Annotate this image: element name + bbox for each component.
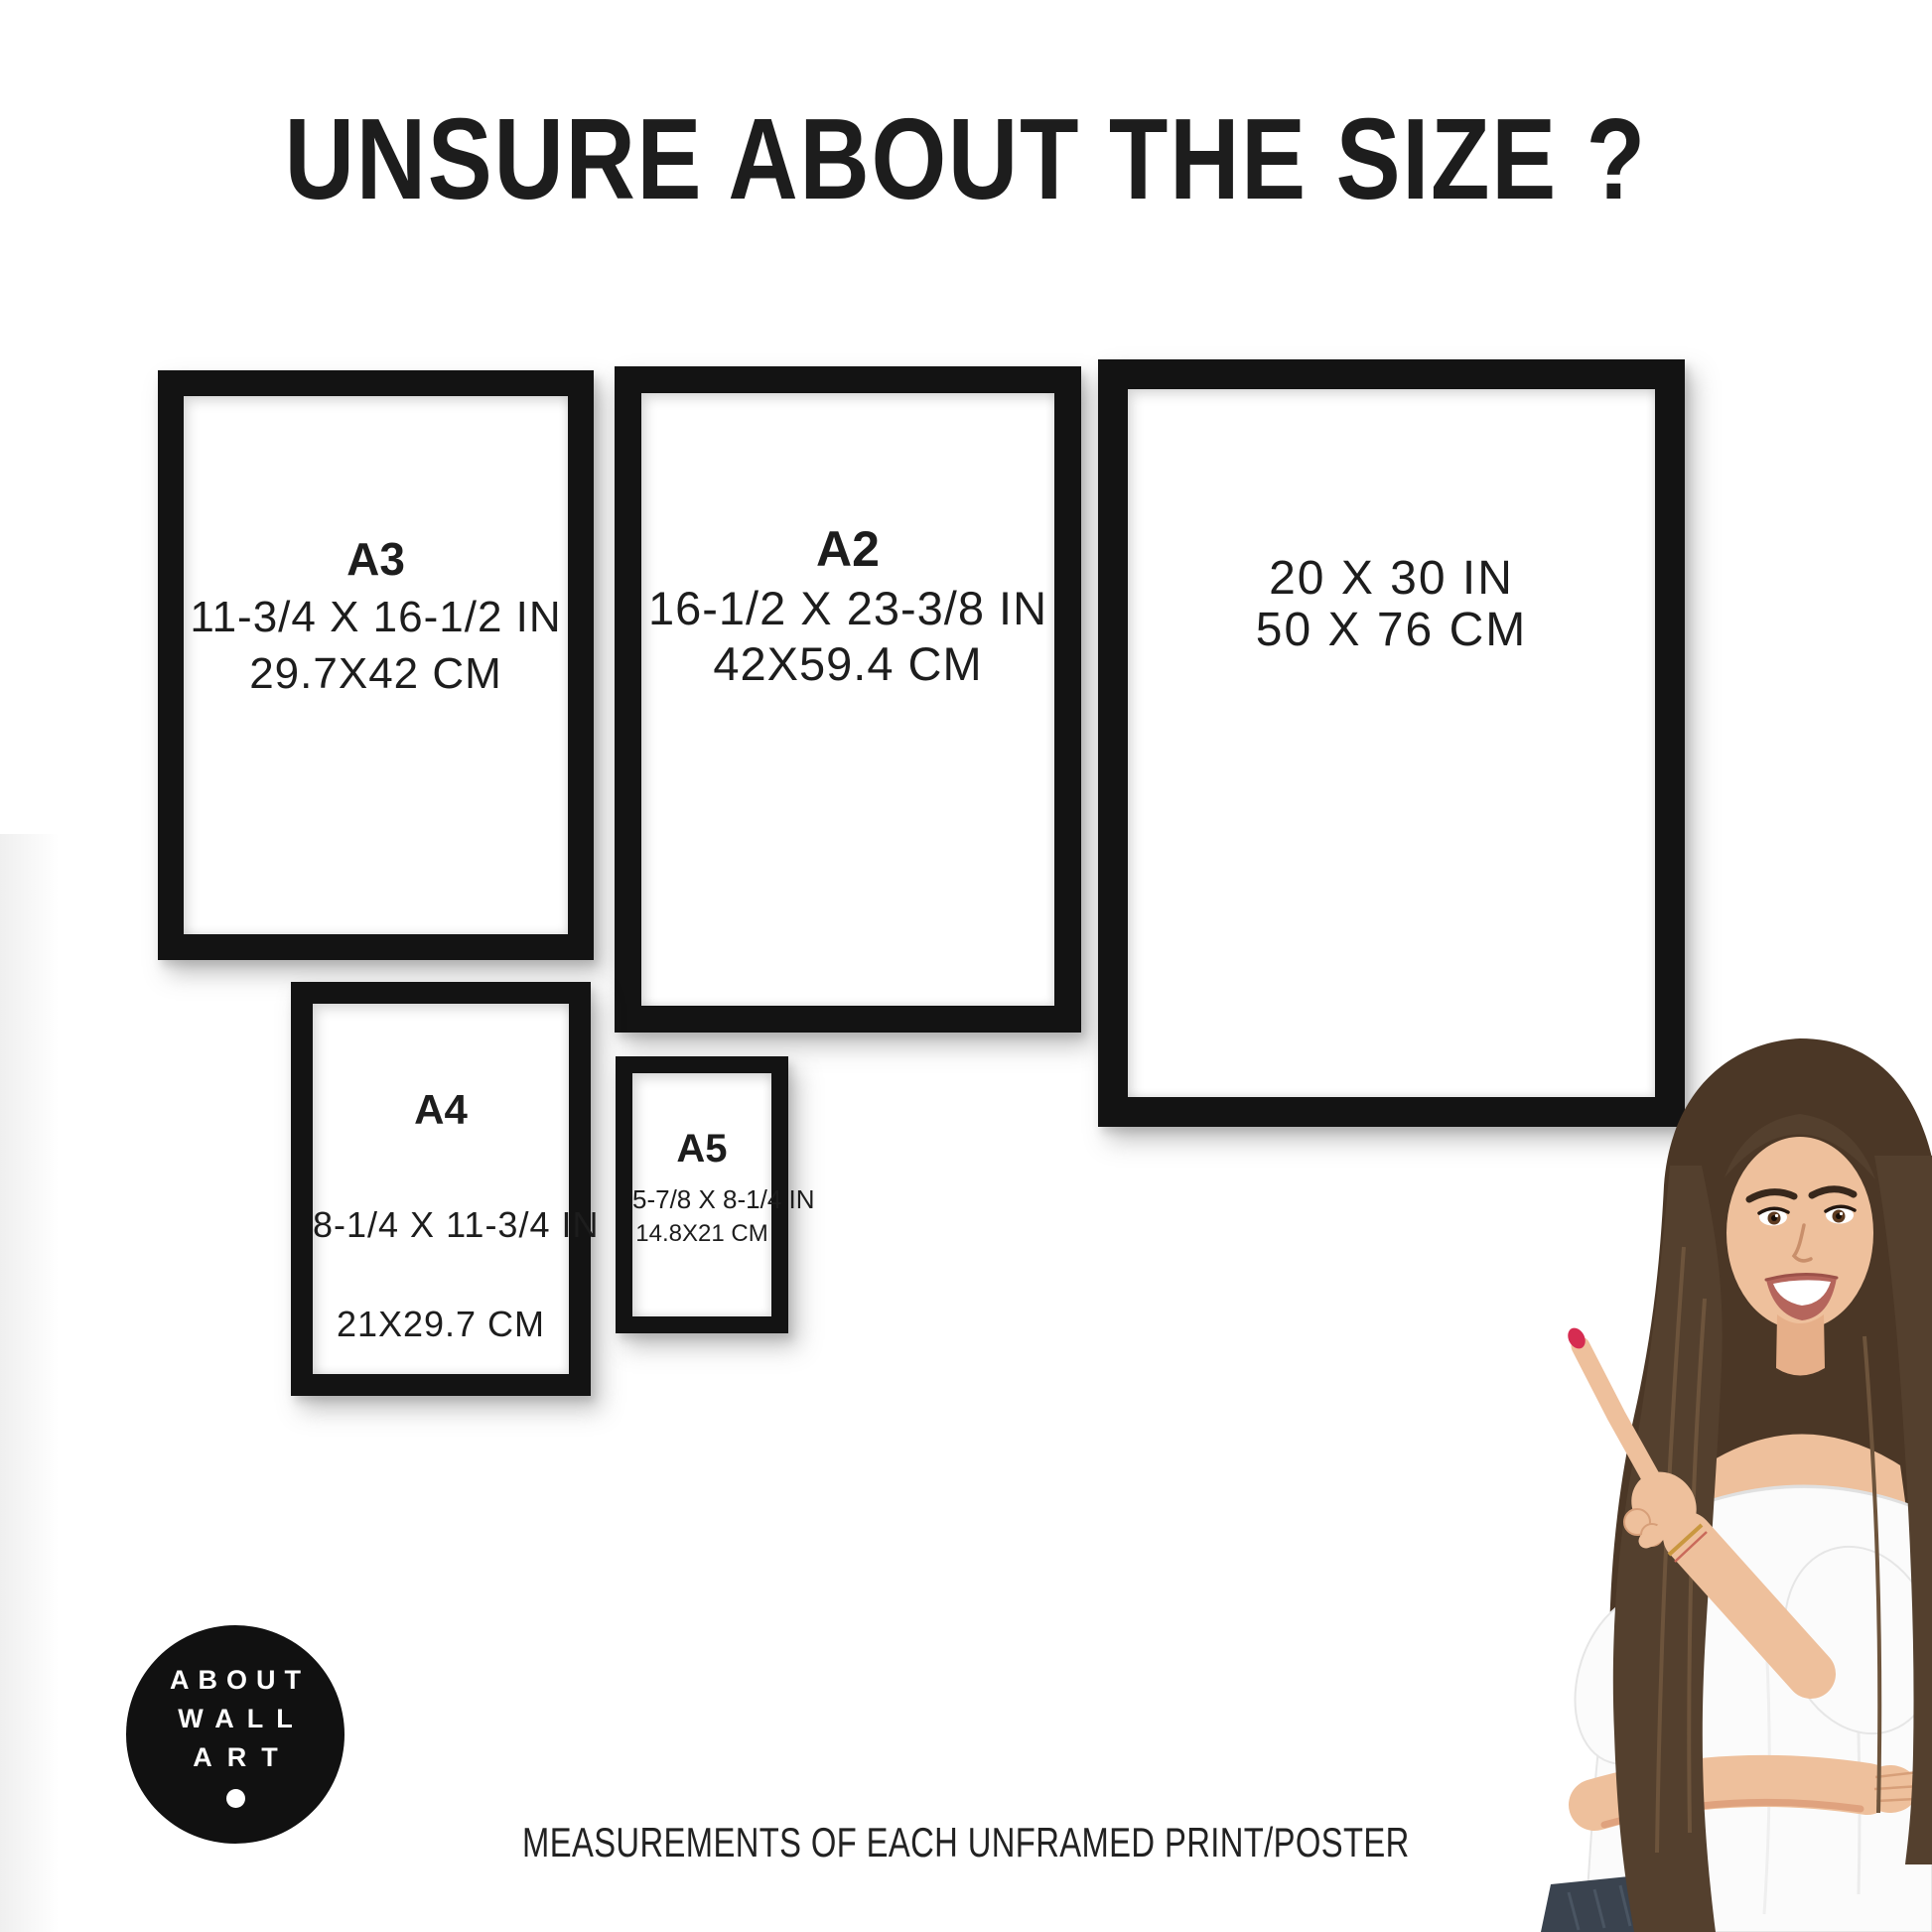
footer-caption-text: MEASUREMENTS OF EACH UNFRAMED PRINT/POST…	[522, 1820, 1410, 1865]
frame-a4-paper: A4 8-1/4 X 11-3/4 IN 21X29.7 CM	[313, 1004, 569, 1374]
frame-a2-cm: 42X59.4 CM	[641, 636, 1054, 692]
frame-a2-paper: A2 16-1/2 X 23-3/8 IN 42X59.4 CM	[641, 393, 1054, 1006]
frame-a5-inches: 5-7/8 X 8-1/4 IN	[632, 1183, 771, 1215]
frame-a3-cm: 29.7X42 CM	[184, 645, 568, 702]
frame-20x30: 20 X 30 IN 50 X 76 CM	[1098, 359, 1685, 1127]
page-title: UNSURE ABOUT THE SIZE ?	[0, 99, 1932, 220]
frame-a4-cm: 21X29.7 CM	[313, 1302, 569, 1347]
frame-a3-inches: 11-3/4 X 16-1/2 IN	[184, 589, 568, 645]
frame-a2-inches: 16-1/2 X 23-3/8 IN	[641, 581, 1054, 636]
page-title-text: UNSURE ABOUT THE SIZE ?	[285, 99, 1647, 220]
frame-a3: A3 11-3/4 X 16-1/2 IN 29.7X42 CM	[158, 370, 594, 960]
frame-a4-inches: 8-1/4 X 11-3/4 IN	[313, 1202, 569, 1248]
brand-logo-line1: ABOUT	[161, 1661, 310, 1700]
neck	[1776, 1314, 1825, 1376]
frame-20x30-paper: 20 X 30 IN 50 X 76 CM	[1128, 389, 1655, 1097]
frame-a5: A5 5-7/8 X 8-1/4 IN 14.8X21 CM	[616, 1056, 788, 1333]
brand-logo-dot-icon	[226, 1789, 245, 1808]
frame-a3-label: A3	[184, 529, 568, 589]
frame-a2: A2 16-1/2 X 23-3/8 IN 42X59.4 CM	[615, 366, 1081, 1033]
woman-pointing-photo	[1465, 1038, 1932, 1932]
frame-a4: A4 8-1/4 X 11-3/4 IN 21X29.7 CM	[291, 982, 591, 1396]
frame-a5-cm: 14.8X21 CM	[632, 1219, 771, 1249]
footer-caption: MEASUREMENTS OF EACH UNFRAMED PRINT/POST…	[397, 1820, 1390, 1865]
backdrop-shading	[0, 834, 69, 1932]
brand-logo-line2: WALL	[165, 1700, 305, 1738]
frame-a2-label: A2	[641, 517, 1054, 581]
brand-logo-line3: ART	[178, 1738, 293, 1777]
frame-a4-label: A4	[313, 1083, 569, 1137]
frame-a5-label: A5	[632, 1124, 771, 1173]
frame-20x30-inches: 20 X 30 IN	[1128, 553, 1655, 605]
frame-20x30-cm: 50 X 76 CM	[1128, 605, 1655, 656]
frame-a5-paper: A5 5-7/8 X 8-1/4 IN 14.8X21 CM	[632, 1073, 771, 1316]
frame-a3-paper: A3 11-3/4 X 16-1/2 IN 29.7X42 CM	[184, 396, 568, 934]
size-guide-poster: UNSURE ABOUT THE SIZE ? A3 11-3/4 X 16-1…	[0, 0, 1932, 1932]
brand-logo: ABOUT WALL ART	[126, 1625, 345, 1844]
